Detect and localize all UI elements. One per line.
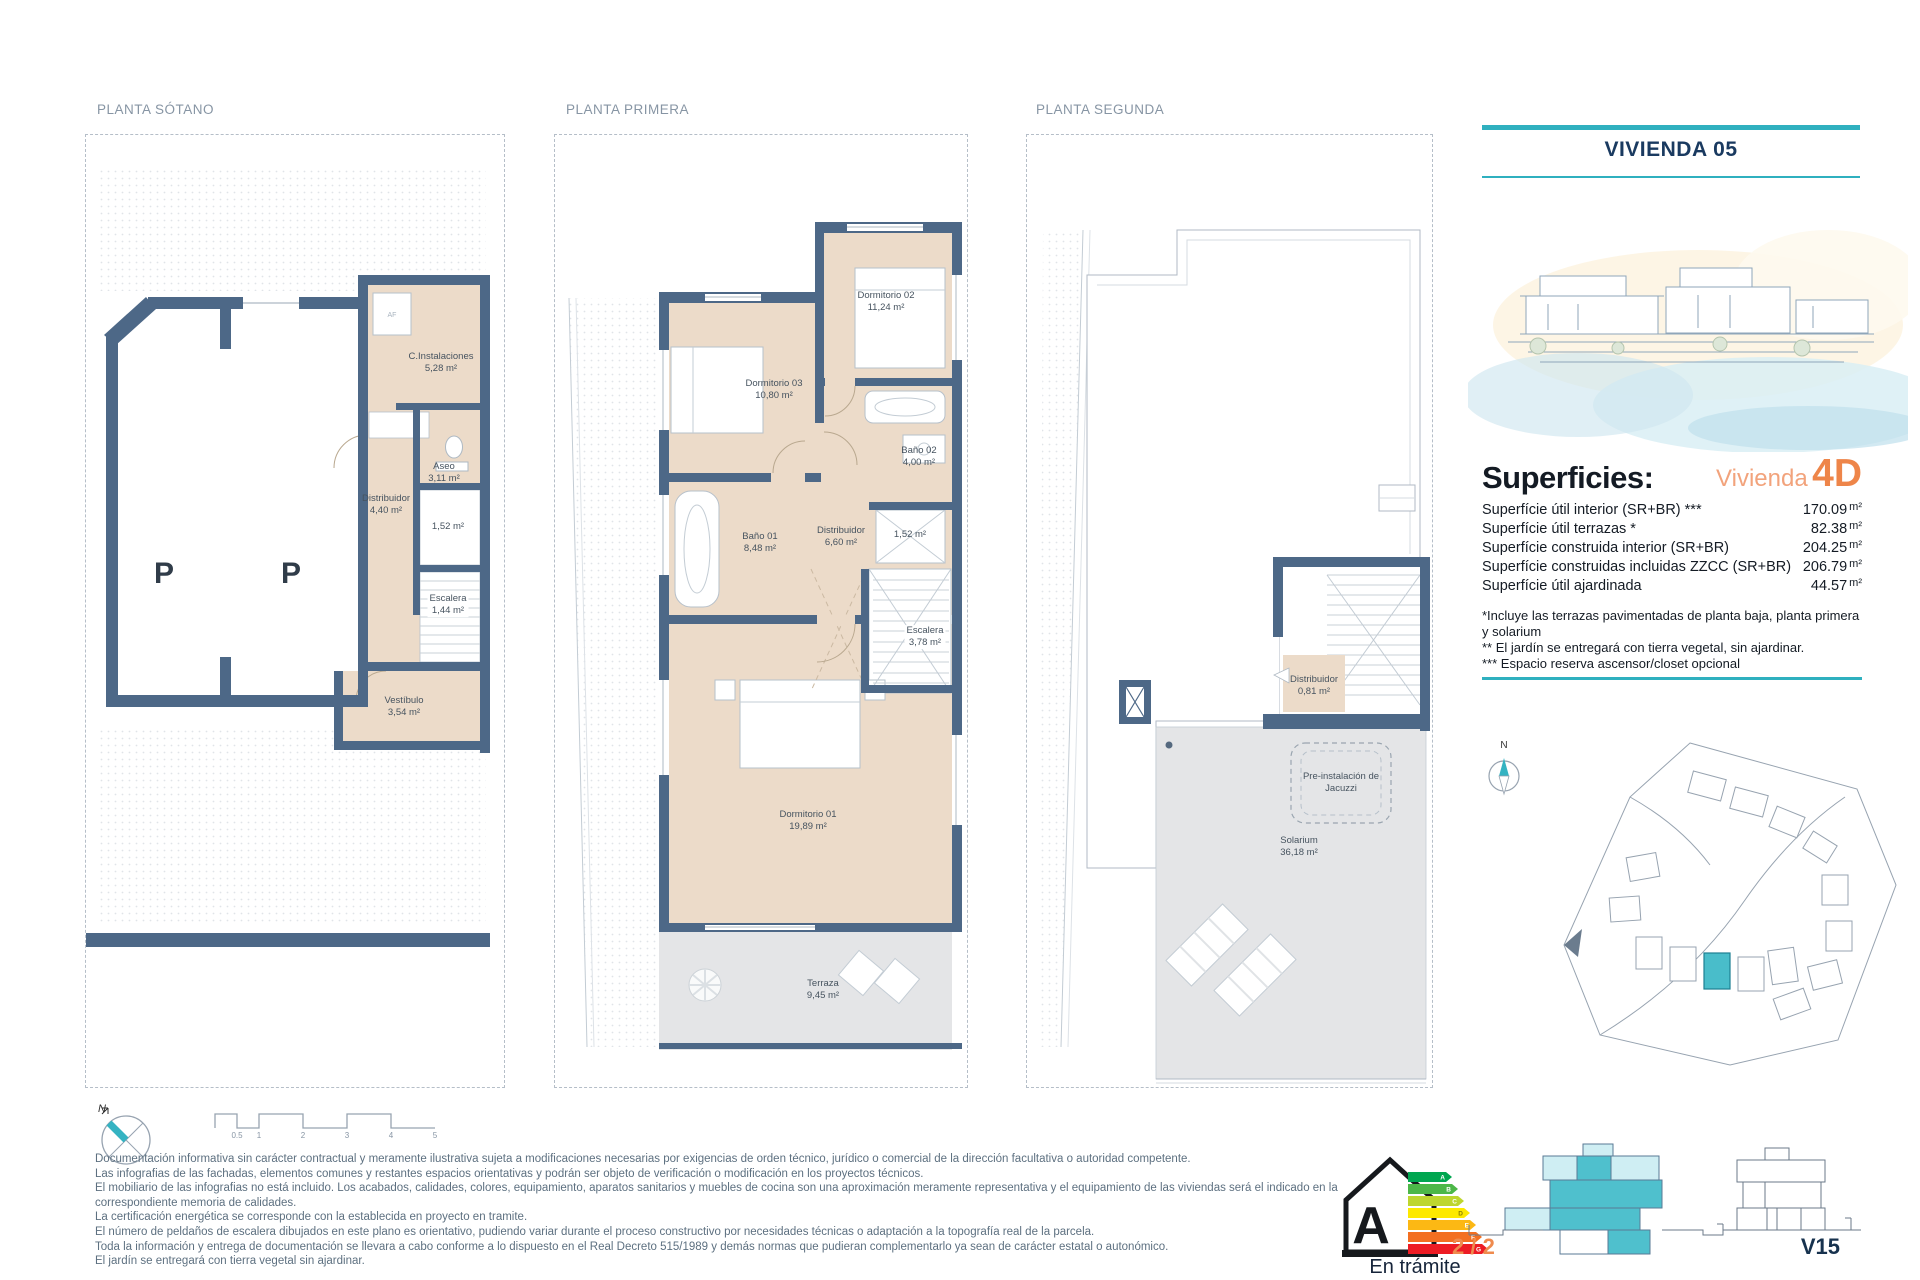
svg-text:0.5: 0.5 — [231, 1131, 243, 1140]
page-number: 2 / 2 — [1452, 1234, 1495, 1260]
svg-text:C: C — [1452, 1199, 1457, 1206]
panel-planta-primera: Dormitorio 0310,80 m² Dormitorio 0211,24… — [554, 134, 968, 1088]
superficies-row: Superfície útil interior (SR+BR) *** 170… — [1482, 501, 1862, 520]
room-label-c-instalaciones: C.Instalaciones5,28 m² — [409, 351, 474, 375]
room-label-escalera-primera: Escalera3,78 m² — [905, 625, 946, 649]
room-label-jacuzzi: Pre-instalación de Jacuzzi — [1291, 771, 1391, 795]
primera-floor-plan — [555, 135, 967, 1087]
superficies-block: Superficies: Vivienda 4D Superfície útil… — [1482, 452, 1862, 680]
parking-letter-1: P — [154, 557, 174, 590]
room-label-dormitorio-03: Dormitorio 0310,80 m² — [745, 378, 802, 402]
plan-sheet: PLANTA SÓTANO PLANTA PRIMERA PLANTA SEGU… — [0, 0, 1920, 1280]
superficies-row: Superfície construidas incluidas ZZCC (S… — [1482, 558, 1862, 577]
panel-planta-sotano: AF — [85, 134, 505, 1088]
superficies-row: Superfície construida interior (SR+BR) 2… — [1482, 539, 1862, 558]
room-label-distribuidor-primera: Distribuidor6,60 m² — [817, 525, 865, 549]
plan-title-segunda: PLANTA SEGUNDA — [1036, 102, 1164, 117]
superficies-table: Superfície útil interior (SR+BR) *** 170… — [1482, 501, 1862, 596]
af-unit-label: AF — [388, 312, 397, 319]
room-label-solarium: Solarium36,18 m² — [1280, 835, 1318, 859]
room-label-vestibulo: Vestíbulo3,54 m² — [384, 695, 423, 719]
parking-letter-2: P — [281, 557, 301, 590]
site-compass: N — [1482, 736, 1526, 800]
room-label-bano-01: Baño 018,48 m² — [742, 531, 777, 555]
superficies-notes: *Incluye las terrazas pavimentadas de pl… — [1482, 608, 1862, 672]
room-label-distribuidor-sotano: Distribuidor4,40 m² — [362, 493, 410, 517]
svg-text:A: A — [1440, 1175, 1445, 1182]
svg-text:1: 1 — [257, 1131, 262, 1140]
svg-text:2: 2 — [301, 1131, 306, 1140]
legal-disclaimer: Documentación informativa sin carácter c… — [95, 1152, 1340, 1269]
vivienda-title: VIVIENDA 05 — [1482, 138, 1860, 162]
plan-title-primera: PLANTA PRIMERA — [566, 102, 689, 117]
room-label-terraza: Terraza9,45 m² — [807, 978, 839, 1002]
room-label-distribuidor-segunda: Distribuidor0,81 m² — [1290, 674, 1338, 698]
sheet-code: V15 — [1770, 1234, 1840, 1260]
segunda-floor-plan — [1027, 135, 1432, 1087]
panel-planta-segunda: Distribuidor0,81 m² Pre-instalación de J… — [1026, 134, 1433, 1088]
building-render-sketch — [1468, 200, 1908, 452]
room-label-dormitorio-01: Dormitorio 0119,89 m² — [779, 809, 836, 833]
room-label-aseo: Aseo3,11 m² — [428, 461, 460, 485]
room-label-152-sotano: 1,52 m² — [432, 521, 464, 533]
vivienda-type: 4D — [1812, 452, 1862, 495]
scale-bar: 0.5 1 2 3 4 5 — [210, 1098, 460, 1140]
plan-title-sotano: PLANTA SÓTANO — [97, 102, 214, 117]
svg-text:N: N — [98, 1103, 106, 1115]
room-label-escalera-sotano: Escalera1,44 m² — [428, 593, 469, 617]
site-location-map — [1540, 735, 1910, 1080]
svg-text:N: N — [1500, 740, 1507, 751]
title-bottom-rule — [1482, 176, 1860, 178]
vivienda-label: Vivienda — [1716, 465, 1808, 492]
superficies-row: Superfície útil ajardinada 44.57m² — [1482, 577, 1862, 596]
energy-letter: A — [1352, 1197, 1390, 1255]
room-label-bano-02: Baño 024,00 m² — [901, 445, 936, 469]
superficies-rule — [1482, 677, 1862, 680]
svg-text:5: 5 — [433, 1131, 438, 1140]
svg-text:D: D — [1458, 1211, 1463, 1218]
svg-text:B: B — [1446, 1187, 1451, 1194]
room-label-dormitorio-02: Dormitorio 0211,24 m² — [857, 290, 914, 314]
superficies-row: Superfície útil terrazas * 82.38m² — [1482, 520, 1862, 539]
svg-text:4: 4 — [389, 1131, 394, 1140]
svg-text:3: 3 — [345, 1131, 350, 1140]
room-label-152-primera: 1,52 m² — [894, 529, 926, 541]
title-top-rule — [1482, 125, 1860, 130]
highlighted-plot — [1704, 953, 1730, 989]
superficies-heading: Superficies: — [1482, 460, 1653, 496]
